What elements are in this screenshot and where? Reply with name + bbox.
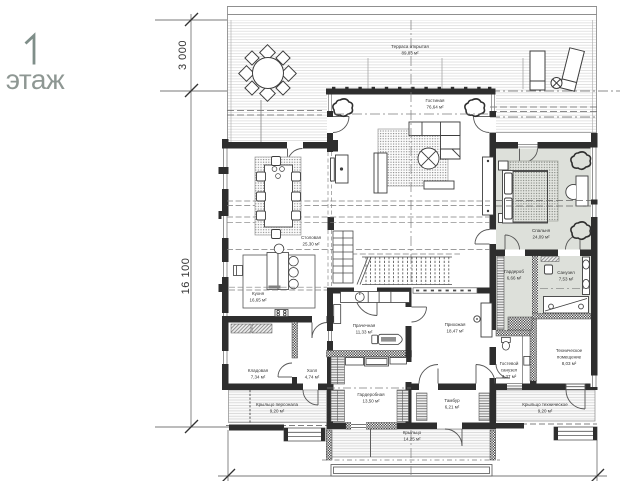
svg-text:6,21 м²: 6,21 м² bbox=[445, 405, 460, 410]
svg-text:7,34 м²: 7,34 м² bbox=[251, 375, 266, 380]
svg-text:6,66 м²: 6,66 м² bbox=[507, 276, 522, 281]
svg-text:Холл: Холл bbox=[307, 368, 318, 373]
svg-text:Кладовая: Кладовая bbox=[248, 368, 269, 373]
svg-text:Гардероб: Гардероб bbox=[504, 269, 524, 274]
svg-text:3 000: 3 000 bbox=[177, 40, 189, 70]
svg-text:76,64 м²: 76,64 м² bbox=[426, 105, 444, 110]
svg-text:Техническое: Техническое bbox=[556, 348, 583, 353]
svg-text:этаж: этаж bbox=[6, 64, 65, 95]
svg-text:Прихожая: Прихожая bbox=[445, 322, 466, 327]
svg-text:Крыльцо: Крыльцо bbox=[403, 430, 422, 435]
svg-text:9,20 м²: 9,20 м² bbox=[538, 409, 553, 414]
svg-text:11,33 м²: 11,33 м² bbox=[356, 330, 373, 335]
svg-text:Спальня: Спальня bbox=[532, 228, 551, 233]
svg-text:Крыльцо техническое: Крыльцо техническое bbox=[522, 402, 568, 407]
svg-text:помещение: помещение bbox=[557, 355, 582, 360]
svg-text:Гостиная: Гостиная bbox=[426, 98, 445, 103]
svg-text:89,83 м²: 89,83 м² bbox=[401, 51, 419, 56]
svg-text:9,20 м²: 9,20 м² bbox=[270, 409, 285, 414]
svg-text:Санузел: Санузел bbox=[557, 270, 575, 275]
svg-text:7,53 м²: 7,53 м² bbox=[559, 277, 574, 282]
svg-text:Гостевой: Гостевой bbox=[500, 360, 519, 366]
svg-text:Столовая: Столовая bbox=[301, 235, 322, 240]
svg-text:24,09 м²: 24,09 м² bbox=[532, 235, 550, 240]
svg-text:Крыльцо персонала: Крыльцо персонала bbox=[256, 402, 298, 407]
svg-text:18,47 м²: 18,47 м² bbox=[446, 329, 464, 334]
svg-text:16 100: 16 100 bbox=[180, 258, 192, 295]
svg-text:Терраса открытая: Терраса открытая bbox=[391, 44, 429, 49]
svg-text:8,03 м²: 8,03 м² bbox=[562, 361, 577, 366]
svg-text:санузел: санузел bbox=[501, 368, 518, 373]
svg-text:25,30 м²: 25,30 м² bbox=[302, 242, 320, 247]
svg-text:14,25 м²: 14,25 м² bbox=[403, 437, 421, 442]
svg-text:13,50 м²: 13,50 м² bbox=[362, 399, 380, 404]
svg-text:4,37 м²: 4,37 м² bbox=[502, 374, 517, 379]
svg-text:Прачечная: Прачечная bbox=[353, 323, 376, 328]
svg-text:Гардеробная: Гардеробная bbox=[357, 392, 385, 397]
svg-text:Кухня: Кухня bbox=[252, 291, 265, 296]
svg-text:4,74 м²: 4,74 м² bbox=[305, 375, 320, 380]
svg-text:16,65 м²: 16,65 м² bbox=[249, 298, 267, 303]
svg-text:Тамбур: Тамбур bbox=[444, 398, 460, 403]
